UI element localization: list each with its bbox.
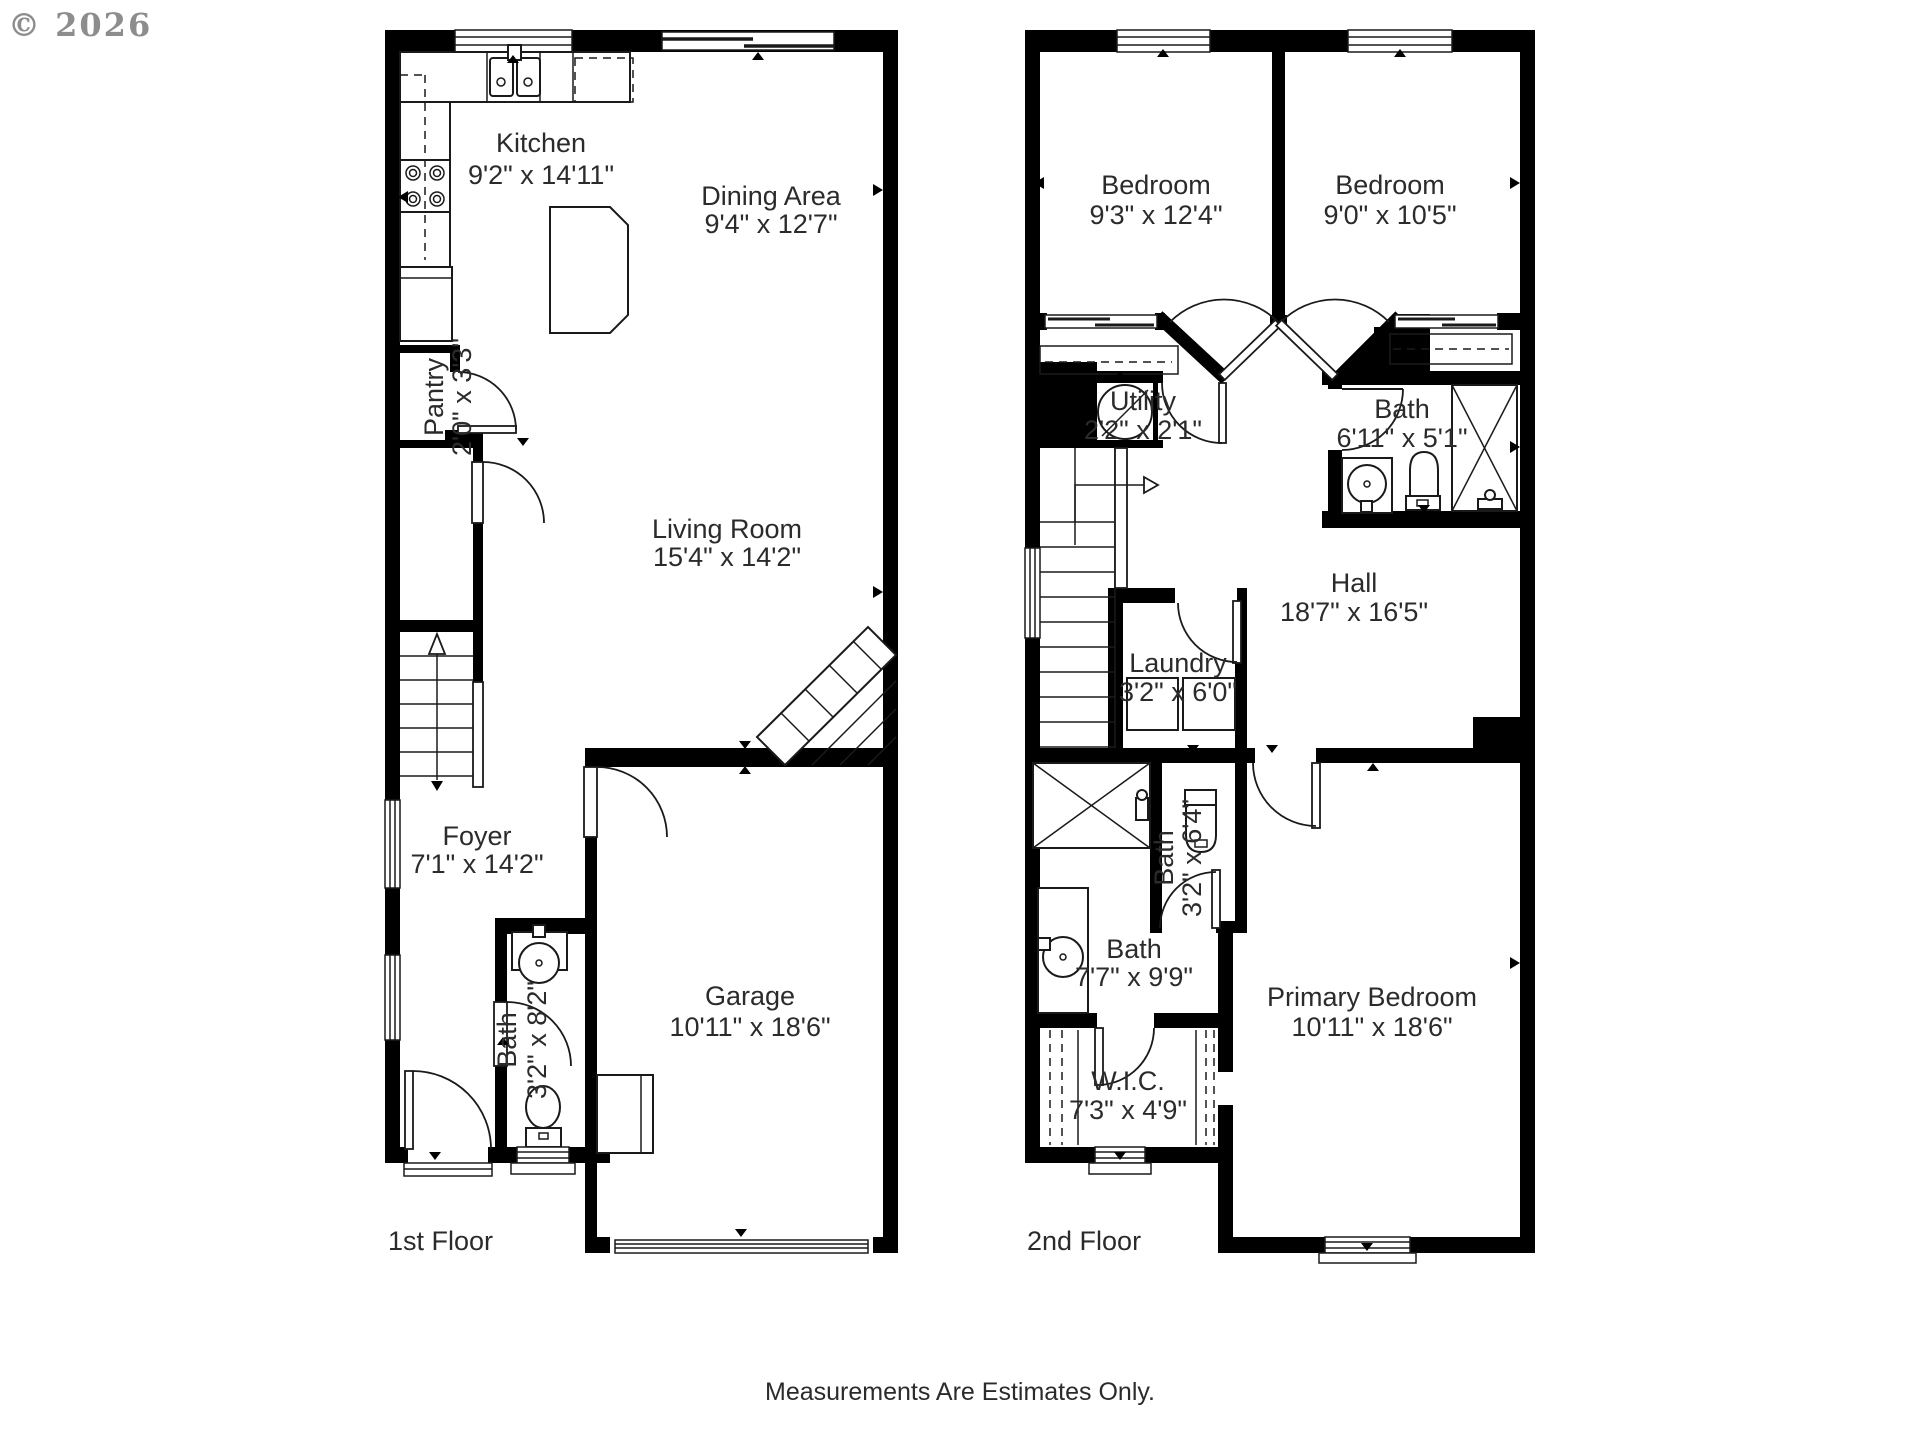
- foyer-window: [385, 800, 400, 888]
- room-label-bath-wc: Bath: [1149, 830, 1179, 886]
- furnace-icon: [597, 1075, 653, 1153]
- front-door: [404, 1071, 492, 1176]
- refrigerator-icon: [400, 267, 452, 341]
- room-dims-kitchen: 9'2" x 14'11": [468, 160, 614, 190]
- room-label-bath1: Bath: [492, 1012, 522, 1068]
- first-floor-plan: Kitchen 9'2" x 14'11" Dining Area 9'4" x…: [385, 30, 898, 1256]
- room-dims-living: 15'4" x 14'2": [653, 542, 801, 572]
- dining-sliding-window: [662, 32, 834, 50]
- floor-plan-canvas: Kitchen 9'2" x 14'11" Dining Area 9'4" x…: [0, 0, 1920, 1440]
- garage-entry-door: [584, 767, 667, 837]
- second-floor-plan: Bedroom 9'3" x 12'4" Bedroom 9'0" x 10'5…: [1025, 30, 1535, 1263]
- room-label-foyer: Foyer: [442, 821, 511, 851]
- room-dims-bedroom-left: 9'3" x 12'4": [1089, 200, 1222, 230]
- room-dims-bath-main: 7'7" x 9'9": [1075, 962, 1193, 992]
- room-label-bedroom-left: Bedroom: [1101, 170, 1211, 200]
- room-dims-laundry: 3'2" x 6'0": [1119, 677, 1237, 707]
- room-dims-pantry: 2'0" x 3'3": [447, 338, 477, 456]
- bedroom-right-window: [1348, 30, 1452, 52]
- wic-window: [1089, 1147, 1151, 1174]
- primary-door: [1253, 748, 1320, 828]
- garage-door: [610, 1237, 873, 1253]
- room-label-wic: W.I.C.: [1091, 1066, 1165, 1096]
- foyer-window-2: [385, 955, 400, 1040]
- room-label-hall: Hall: [1331, 568, 1378, 598]
- room-dims-utility: 2'2" x 2'1": [1084, 415, 1202, 445]
- room-dims-bath-wc: 3'2" x 6'4": [1177, 799, 1207, 917]
- room-dims-primary: 10'11" x 18'6": [1291, 1012, 1452, 1042]
- winder-stairs-icon: [757, 627, 896, 765]
- room-dims-dining: 9'4" x 12'7": [704, 209, 837, 239]
- room-dims-bath-upper: 6'11" x 5'1": [1336, 423, 1467, 453]
- room-label-bath-main: Bath: [1106, 934, 1162, 964]
- room-dims-hall: 18'7" x 16'5": [1280, 597, 1428, 627]
- bath-window: [511, 1147, 575, 1174]
- room-label-dining: Dining Area: [701, 181, 842, 211]
- floor1-label: 1st Floor: [388, 1226, 493, 1256]
- closet-door: [472, 462, 544, 523]
- room-label-bedroom-right: Bedroom: [1335, 170, 1445, 200]
- stair-side-window: [1025, 548, 1040, 638]
- room-dims-bedroom-right: 9'0" x 10'5": [1323, 200, 1456, 230]
- bedroom-left-window: [1117, 30, 1210, 52]
- room-dims-foyer: 7'1" x 14'2": [410, 849, 543, 879]
- room-label-laundry: Laundry: [1129, 648, 1227, 678]
- room-label-garage: Garage: [705, 981, 795, 1011]
- room-dims-wic: 7'3" x 4'9": [1069, 1095, 1187, 1125]
- bath-sink-icon: [512, 925, 567, 983]
- floor-plan-page: Kitchen 9'2" x 14'11" Dining Area 9'4" x…: [0, 0, 1920, 1440]
- room-label-pantry: Pantry: [419, 357, 449, 436]
- room-label-utility: Utility: [1110, 386, 1176, 416]
- room-dims-bath1: 3'2" x 8'2": [522, 981, 552, 1099]
- room-label-primary: Primary Bedroom: [1267, 982, 1477, 1012]
- room-label-kitchen: Kitchen: [496, 128, 586, 158]
- floor2-label: 2nd Floor: [1027, 1226, 1141, 1256]
- room-label-bath-upper: Bath: [1374, 394, 1430, 424]
- stairs-first-floor: [400, 634, 483, 791]
- footer-disclaimer: Measurements Are Estimates Only.: [765, 1378, 1155, 1406]
- room-dims-garage: 10'11" x 18'6": [669, 1012, 830, 1042]
- kitchen-island: [550, 207, 628, 333]
- room-label-living: Living Room: [652, 514, 802, 544]
- copyright-text: © 2026: [8, 6, 152, 44]
